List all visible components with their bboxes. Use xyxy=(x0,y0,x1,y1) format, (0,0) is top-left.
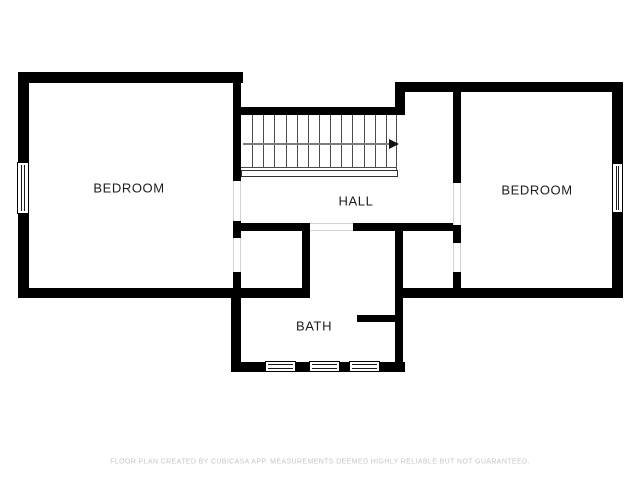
floor-plan-canvas: BEDROOM HALL BATH BEDROOM FLOOR PLAN CRE… xyxy=(0,0,640,480)
stair-tread-line xyxy=(263,115,264,168)
stair-tread-line xyxy=(286,115,287,168)
room-label-bedroom-left: BEDROOM xyxy=(93,181,164,196)
wall-top-left-section xyxy=(18,72,243,83)
room-label-hall: HALL xyxy=(339,194,374,209)
wall-south-right-section xyxy=(395,288,622,298)
stair-tread-line xyxy=(386,115,387,168)
stair-tread-line xyxy=(364,115,365,168)
window-bedroom-left xyxy=(17,162,29,214)
window-bath-2 xyxy=(309,361,340,372)
wall-hall-south-left xyxy=(233,223,310,231)
stair-tread-line xyxy=(319,115,320,168)
wall-bedroom-right-west-upper xyxy=(453,92,461,183)
staircase-bottom-edge xyxy=(241,167,397,168)
wall-bath-stub xyxy=(357,315,403,322)
stair-tread-line xyxy=(352,115,353,168)
stair-tread-line xyxy=(330,115,331,168)
door-bedroom-right-to-closet xyxy=(453,243,461,272)
stairs-direction-arrow-icon xyxy=(389,139,399,149)
window-bedroom-right xyxy=(612,163,623,213)
window-bath-3 xyxy=(349,361,380,372)
stair-tread-line xyxy=(308,115,309,168)
door-hall-to-bath xyxy=(310,223,353,231)
wall-south-left-section xyxy=(18,288,310,298)
staircase-treads xyxy=(241,115,397,168)
window-bath-1 xyxy=(265,361,296,372)
stair-tread-line xyxy=(341,115,342,168)
stair-tread-line xyxy=(297,115,298,168)
wall-bath-east xyxy=(395,223,403,372)
room-label-bath: BATH xyxy=(296,319,332,334)
room-label-bedroom-right: BEDROOM xyxy=(501,183,572,198)
stairs-direction-line xyxy=(243,143,390,145)
door-bedroom-left-to-closet xyxy=(233,238,241,272)
staircase-landing-rail xyxy=(241,170,398,177)
door-hall-to-bedroom-right xyxy=(453,183,461,225)
stair-tread-line xyxy=(274,115,275,168)
wall-stairwell-north xyxy=(233,107,405,115)
wall-closet-left-east xyxy=(302,223,310,298)
wall-bedroom-right-west-lower xyxy=(453,272,461,298)
door-bedroom-left-to-hall xyxy=(233,181,241,221)
footer-disclaimer: FLOOR PLAN CREATED BY CUBICASA APP. MEAS… xyxy=(110,459,530,466)
wall-top-right-section xyxy=(395,82,622,92)
wall-bath-west xyxy=(231,288,241,372)
wall-bedroom-left-east-upper xyxy=(233,72,241,181)
stair-tread-line xyxy=(375,115,376,168)
wall-hall-south-right xyxy=(353,223,461,231)
stair-tread-line xyxy=(252,115,253,168)
